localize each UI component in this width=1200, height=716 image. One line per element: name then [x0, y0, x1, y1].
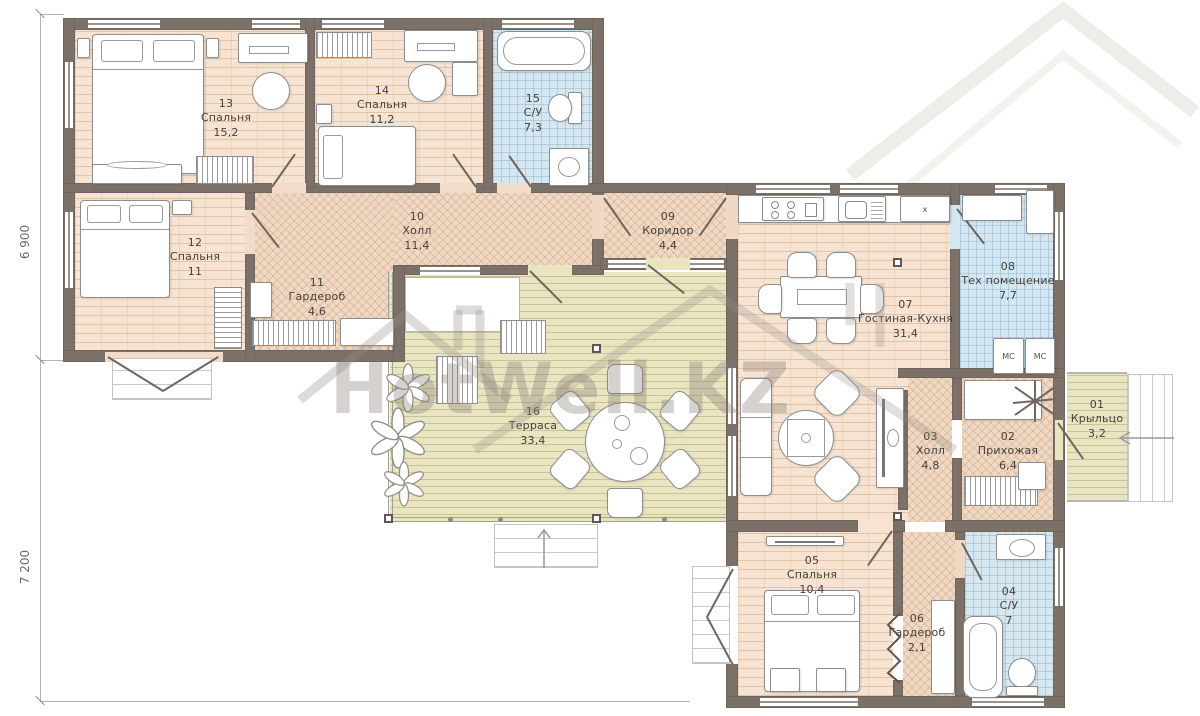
section-marker	[893, 512, 902, 521]
room-area: 7,3	[478, 121, 588, 135]
plant	[380, 460, 428, 508]
room-name: Спальня	[327, 98, 437, 112]
room-name: Коридор	[613, 224, 723, 238]
door-opening	[440, 183, 476, 193]
door-opening	[726, 195, 738, 239]
room-name: Гардероб	[862, 626, 972, 640]
desk	[404, 30, 478, 62]
dimension-extension	[40, 14, 64, 15]
wall	[726, 520, 858, 532]
room-area: 7	[954, 614, 1064, 628]
room-name: С/У	[478, 106, 588, 120]
door-opening	[272, 183, 306, 193]
dimension-extension	[40, 360, 64, 361]
door-opening	[592, 195, 604, 239]
room-area: 11,2	[327, 113, 437, 127]
room-area: 2,1	[862, 641, 972, 655]
room-number: 13	[171, 97, 281, 111]
washing-machine-label: МС	[1034, 352, 1047, 361]
wall	[945, 520, 1065, 532]
washing-machine: МС	[1025, 338, 1055, 374]
room-name: Крыльцо	[1042, 412, 1152, 426]
bay-steps	[112, 358, 212, 400]
terrace-edge	[390, 517, 728, 522]
room-number: 04	[954, 585, 1064, 599]
room-label-10: 10 Холл 11,4	[362, 210, 472, 253]
room-area: 15,2	[171, 126, 281, 140]
desk	[238, 33, 308, 63]
wardrobe-rack	[196, 156, 254, 184]
toilet-bowl	[1008, 658, 1036, 688]
window	[502, 20, 574, 28]
washing-machine: МС	[993, 338, 1024, 374]
room-number: 12	[140, 236, 250, 250]
dimension-label-bottom: 7 200	[18, 550, 32, 584]
room-label-04: 04 С/У 7	[954, 585, 1064, 628]
room-label-15: 15 С/У 7,3	[478, 92, 588, 135]
room-area: 11,4	[362, 239, 472, 253]
terrace-post	[384, 514, 393, 523]
terrace-arrow	[534, 524, 554, 570]
single-bed	[318, 126, 416, 186]
roof-sketch	[845, 0, 1200, 190]
window	[840, 185, 898, 193]
toilet-tank	[1006, 686, 1038, 696]
room-area: 10,4	[757, 583, 867, 597]
room-name: Спальня	[140, 250, 250, 264]
terrace-post-dot	[662, 517, 667, 522]
room-number: 10	[362, 210, 472, 224]
window	[756, 185, 830, 193]
window	[760, 698, 858, 706]
tech-counter	[962, 195, 1022, 221]
room-label-14: 14 Спальня 11,2	[327, 84, 437, 127]
terrace-post-dot	[498, 517, 503, 522]
desk-return	[452, 62, 478, 96]
washing-machine-label: МС	[1002, 352, 1015, 361]
window	[322, 20, 384, 28]
room-area: 4,4	[613, 239, 723, 253]
door-opening	[858, 520, 893, 532]
terrace-chair	[607, 488, 643, 518]
nightstand	[206, 38, 219, 58]
room-label-13: 13 Спальня 15,2	[171, 97, 281, 140]
watermark-text: HotWell.KZ	[330, 348, 792, 430]
room-number: 01	[1042, 398, 1152, 412]
sink	[549, 148, 589, 186]
room-name: Спальня	[757, 568, 867, 582]
stove	[762, 197, 824, 221]
bathtub	[497, 31, 591, 71]
window	[88, 20, 160, 28]
room-label-05: 05 Спальня 10,4	[757, 554, 867, 597]
room-label-01: 01 Крыльцо 3,2	[1042, 398, 1152, 441]
boiler	[1026, 190, 1054, 234]
floor-plan: 6 900 7 200	[0, 0, 1200, 716]
window	[252, 20, 300, 28]
room-label-12: 12 Спальня 11	[140, 236, 250, 279]
room-number: 05	[757, 554, 867, 568]
wall	[893, 520, 905, 532]
door-opening	[497, 183, 531, 193]
terrace-post	[592, 514, 601, 523]
dimension-extension	[40, 701, 690, 702]
window	[65, 212, 73, 288]
room-number: 14	[327, 84, 437, 98]
room-area: 3,2	[1042, 427, 1152, 441]
bed-bench	[816, 668, 846, 692]
room-area: 11	[140, 265, 250, 279]
window	[972, 698, 1044, 706]
room-number: 15	[478, 92, 588, 106]
room-number: 09	[613, 210, 723, 224]
nightstand	[77, 38, 90, 58]
room-name: С/У	[954, 599, 1064, 613]
dimension-label-top: 6 900	[18, 225, 32, 259]
room-name: Спальня	[171, 111, 281, 125]
kitchen-sink	[838, 196, 886, 222]
nightstand	[172, 200, 192, 215]
terrace-post-dot	[448, 517, 453, 522]
wall	[955, 532, 965, 540]
dresser	[92, 164, 182, 184]
bed-bench	[770, 668, 800, 692]
room-name: Холл	[362, 224, 472, 238]
wall	[893, 532, 903, 616]
dishwasher-label: x	[923, 205, 928, 214]
wall-tv	[766, 536, 844, 546]
porch-edge	[1067, 372, 1127, 374]
room-label-09: 09 Коридор 4,4	[613, 210, 723, 253]
dishwasher: x	[900, 196, 950, 222]
porch-edge	[1067, 500, 1127, 502]
window	[65, 62, 73, 128]
wardrobe-rack	[316, 32, 372, 58]
vanity-sink	[996, 534, 1046, 560]
shelf-rack	[214, 287, 242, 349]
